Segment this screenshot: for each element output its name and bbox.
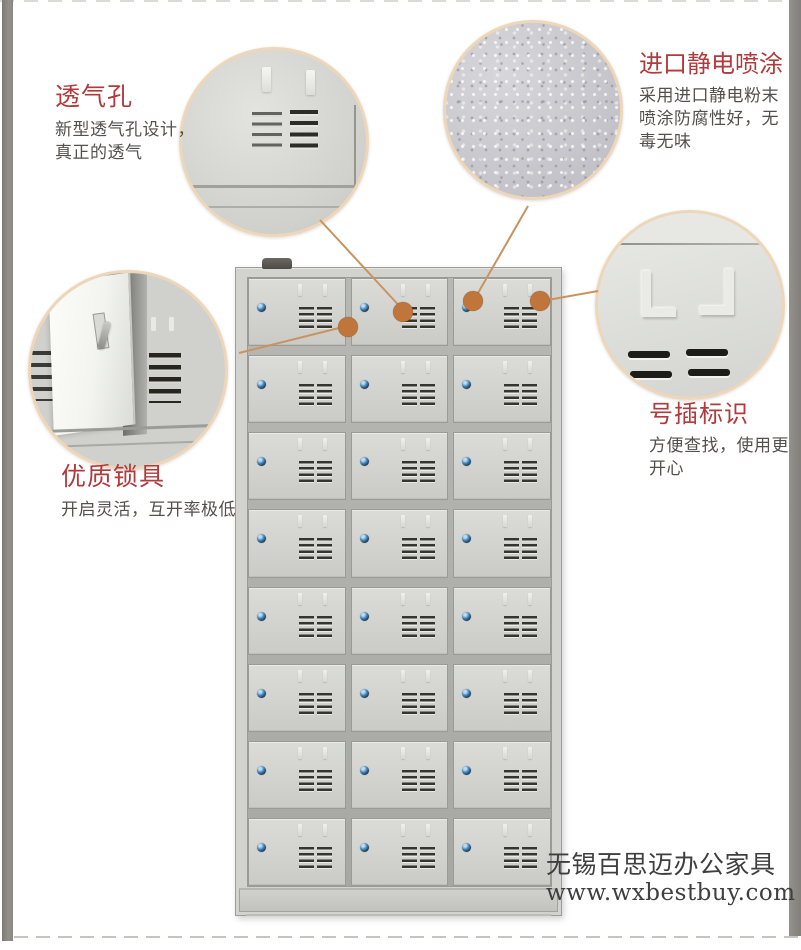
vent-slots <box>299 770 332 794</box>
lock-knob <box>462 457 471 466</box>
card-slot-mark <box>262 67 271 92</box>
vent-slots <box>402 461 435 485</box>
locker-door <box>351 818 449 886</box>
card-holder <box>503 593 532 606</box>
locker-door <box>248 664 346 732</box>
callout-text: 开启灵活，互开率极低 <box>61 498 301 521</box>
vent-slots <box>402 770 435 794</box>
locker-door <box>453 587 551 655</box>
callout-number-label: 号插标识 方便查找，使用更 开心 <box>649 402 794 480</box>
locker-door <box>351 741 449 809</box>
door-edge-line <box>179 185 369 188</box>
card-holder <box>401 515 430 528</box>
vent-slots <box>299 384 332 408</box>
card-holder <box>503 361 532 374</box>
lock-knob <box>462 766 471 775</box>
vent-slots <box>504 770 537 794</box>
locker-door <box>453 355 551 423</box>
bottom-dashed-border <box>14 936 801 938</box>
callout-text: 毒无味 <box>639 130 791 153</box>
lock-knob <box>257 534 266 543</box>
locker-door-grid <box>248 278 551 886</box>
card-slot-mark <box>169 317 174 331</box>
lock-knob <box>257 380 266 389</box>
vent-slots <box>299 847 332 871</box>
top-dashed-border <box>0 0 801 2</box>
locker-door <box>453 432 551 500</box>
locker-door <box>248 741 346 809</box>
card-holder <box>298 361 327 374</box>
card-holder <box>298 284 327 297</box>
lock-knob <box>360 303 369 312</box>
locker-door <box>248 355 346 423</box>
lock-detail-bubble <box>28 270 228 470</box>
vent-slats <box>149 353 181 403</box>
vent-slots <box>504 307 537 331</box>
card-holder <box>298 670 327 683</box>
vent-slots <box>402 693 435 717</box>
cabinet-shadow <box>246 914 551 916</box>
door-edge-line <box>598 243 782 245</box>
vent-slots <box>299 693 332 717</box>
lock-knob <box>360 766 369 775</box>
card-holder-bracket <box>642 271 676 317</box>
locker-door <box>453 664 551 732</box>
vent-slat <box>630 371 672 378</box>
vent-slots <box>402 384 435 408</box>
card-holder <box>401 670 430 683</box>
left-edge-strip <box>2 0 13 941</box>
vent-slats <box>290 110 318 155</box>
card-slot-mark <box>306 70 315 95</box>
card-holder <box>298 438 327 451</box>
lock-knob <box>360 457 369 466</box>
locker-door <box>351 278 449 346</box>
lock-knob <box>462 843 471 852</box>
card-holder <box>298 824 327 837</box>
card-holder <box>401 284 430 297</box>
card-holder <box>503 670 532 683</box>
vent-slots <box>504 461 537 485</box>
card-holder <box>401 593 430 606</box>
locker-door <box>351 587 449 655</box>
coating-detail-bubble <box>443 20 623 200</box>
vent-slots <box>504 384 537 408</box>
vent-slots <box>299 538 332 562</box>
lock-knob <box>360 843 369 852</box>
vent-slots <box>402 847 435 871</box>
card-holder-bracket <box>700 269 734 315</box>
callout-text: 开心 <box>649 457 794 480</box>
callout-text: 喷涂防腐性好，无 <box>639 107 791 130</box>
card-holder <box>503 824 532 837</box>
vent-slots <box>504 847 537 871</box>
locker-door <box>248 278 346 346</box>
card-holder <box>401 824 430 837</box>
locker-door <box>351 664 449 732</box>
lock-knob <box>360 612 369 621</box>
card-slot-mark <box>151 317 156 331</box>
vent-slots <box>504 693 537 717</box>
card-holder <box>401 438 430 451</box>
watermark-website: www.wxbestbuy.com <box>546 880 796 906</box>
vent-slat <box>686 349 728 356</box>
watermark-company: 无锡百思迈办公家具 <box>546 850 796 880</box>
locker-door <box>453 509 551 577</box>
locker-door <box>351 355 449 423</box>
locker-door <box>453 278 551 346</box>
lock-knob <box>257 612 266 621</box>
vent-slots <box>504 616 537 640</box>
card-holder <box>298 515 327 528</box>
callout-text: 方便查找，使用更 <box>649 434 794 457</box>
card-holder <box>298 747 327 760</box>
lock-knob <box>462 303 471 312</box>
card-holder <box>503 438 532 451</box>
lock-knob <box>462 689 471 698</box>
card-holder <box>503 515 532 528</box>
callout-title: 号插标识 <box>649 402 794 428</box>
lock-knob <box>462 534 471 543</box>
locker-door <box>248 818 346 886</box>
callout-title: 进口静电喷涂 <box>639 52 791 78</box>
lock-knob <box>257 843 266 852</box>
door-top-band <box>598 213 782 243</box>
vent-slots <box>402 538 435 562</box>
label-detail-bubble <box>595 210 785 400</box>
lock-knob <box>257 689 266 698</box>
card-holder <box>503 284 532 297</box>
callout-text: 真正的透气 <box>55 141 255 164</box>
callout-title: 优质锁具 <box>61 464 301 492</box>
vent-slats <box>252 112 282 154</box>
callout-text: 采用进口静电粉末 <box>639 84 791 107</box>
door-edge-line <box>354 105 356 210</box>
callout-lock: 优质锁具 开启灵活，互开率极低 <box>61 464 301 521</box>
vent-slots <box>504 538 537 562</box>
open-door-panel <box>48 270 135 436</box>
lock-knob <box>462 612 471 621</box>
vent-slots <box>299 307 332 331</box>
vent-slots <box>402 307 435 331</box>
vent-slots <box>299 616 332 640</box>
callout-title: 透气孔 <box>55 84 255 112</box>
locker-door <box>453 741 551 809</box>
callout-text: 新型透气孔设计， <box>55 118 255 141</box>
card-holder <box>503 747 532 760</box>
vent-slat <box>628 351 670 358</box>
card-holder <box>298 593 327 606</box>
lock-knob <box>257 766 266 775</box>
locker-door <box>453 818 551 886</box>
lock-knob <box>257 303 266 312</box>
locker-cabinet <box>235 267 562 916</box>
locker-door <box>351 509 449 577</box>
vent-slat <box>688 369 730 376</box>
locker-door <box>248 587 346 655</box>
lock-knob <box>462 380 471 389</box>
cabinet-top-latch <box>262 258 292 269</box>
vent-slots <box>299 461 332 485</box>
callout-vent-holes: 透气孔 新型透气孔设计， 真正的透气 <box>55 84 255 164</box>
card-holder <box>401 747 430 760</box>
lock-knob <box>360 534 369 543</box>
callout-coating: 进口静电喷涂 采用进口静电粉末 喷涂防腐性好，无 毒无味 <box>639 52 791 153</box>
card-holder <box>401 361 430 374</box>
lock-knob <box>360 380 369 389</box>
lock-knob <box>360 689 369 698</box>
door-edge-line <box>51 440 211 448</box>
door-edge-line <box>179 206 364 208</box>
locker-door <box>351 432 449 500</box>
vent-slots <box>402 616 435 640</box>
watermark: 无锡百思迈办公家具 www.wxbestbuy.com <box>546 850 796 906</box>
cabinet-base <box>239 888 558 912</box>
